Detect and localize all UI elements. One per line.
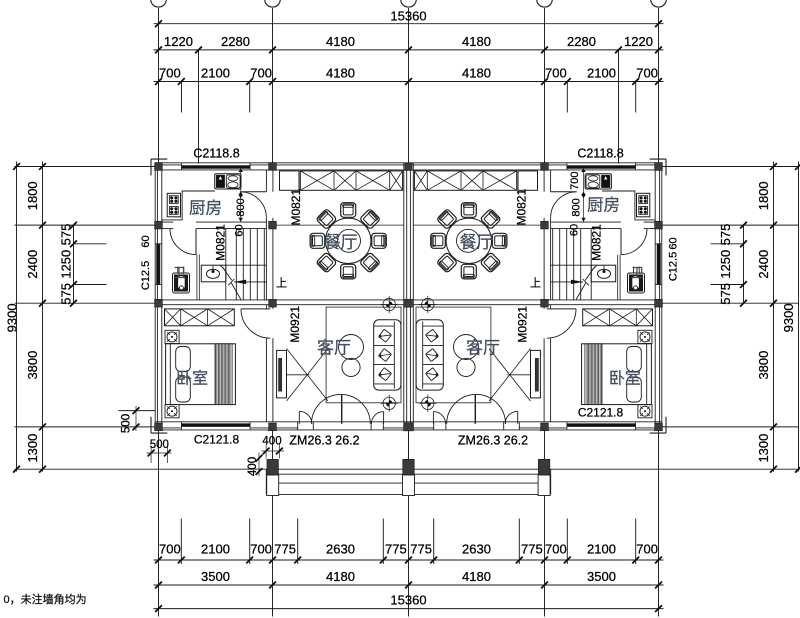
svg-text:4180: 4180 xyxy=(462,66,491,81)
svg-text:客厅: 客厅 xyxy=(317,339,351,358)
svg-text:3800: 3800 xyxy=(25,351,40,380)
svg-text:700: 700 xyxy=(159,542,181,557)
svg-text:卧室: 卧室 xyxy=(176,370,208,388)
svg-text:M0821: M0821 xyxy=(590,224,604,261)
svg-text:客厅: 客厅 xyxy=(466,339,500,358)
svg-text:厨房: 厨房 xyxy=(189,199,222,218)
svg-text:厨房: 厨房 xyxy=(587,196,620,215)
svg-text:15360: 15360 xyxy=(390,8,426,23)
svg-text:M0821: M0821 xyxy=(514,189,528,226)
svg-text:2100: 2100 xyxy=(587,542,616,557)
svg-text:ZM26.3 26.2: ZM26.3 26.2 xyxy=(289,434,359,448)
svg-text:1800: 1800 xyxy=(756,181,771,210)
svg-text:2100: 2100 xyxy=(201,66,230,81)
svg-text:4180: 4180 xyxy=(462,34,491,49)
svg-text:3500: 3500 xyxy=(587,569,616,584)
svg-text:775: 775 xyxy=(410,542,432,557)
svg-text:4180: 4180 xyxy=(326,569,355,584)
svg-text:2630: 2630 xyxy=(326,542,355,557)
svg-text:2280: 2280 xyxy=(221,34,250,49)
svg-text:1250: 1250 xyxy=(59,250,74,279)
svg-text:上: 上 xyxy=(530,277,541,290)
svg-text:700: 700 xyxy=(250,542,272,557)
svg-text:1220: 1220 xyxy=(624,34,653,49)
svg-text:775: 775 xyxy=(274,542,296,557)
svg-text:2630: 2630 xyxy=(462,542,491,557)
svg-text:15360: 15360 xyxy=(390,593,426,608)
svg-text:3500: 3500 xyxy=(201,569,230,584)
svg-text:575: 575 xyxy=(718,283,733,305)
svg-text:C12.5: C12.5 xyxy=(140,261,152,290)
svg-text:700: 700 xyxy=(250,66,272,81)
svg-text:700: 700 xyxy=(159,66,181,81)
svg-text:700: 700 xyxy=(545,66,567,81)
svg-text:上: 上 xyxy=(276,277,287,290)
svg-text:575: 575 xyxy=(718,224,733,246)
svg-text:800: 800 xyxy=(570,198,582,216)
svg-text:M0821: M0821 xyxy=(289,189,303,226)
svg-text:卫: 卫 xyxy=(631,266,644,280)
svg-text:2100: 2100 xyxy=(587,66,616,81)
svg-text:775: 775 xyxy=(521,542,543,557)
svg-text:2280: 2280 xyxy=(567,34,596,49)
svg-text:575: 575 xyxy=(59,283,74,305)
svg-text:700: 700 xyxy=(569,172,581,190)
svg-text:60: 60 xyxy=(667,237,679,249)
svg-text:C2121.8: C2121.8 xyxy=(578,406,624,420)
svg-text:C2121.8: C2121.8 xyxy=(194,433,240,447)
svg-text:60: 60 xyxy=(140,235,152,247)
svg-text:1220: 1220 xyxy=(164,34,193,49)
svg-text:ZM26.3 26.2: ZM26.3 26.2 xyxy=(458,434,528,448)
svg-text:2100: 2100 xyxy=(201,542,230,557)
svg-text:1250: 1250 xyxy=(718,250,733,279)
svg-text:1300: 1300 xyxy=(756,434,771,463)
svg-text:3800: 3800 xyxy=(756,351,771,380)
svg-text:C2118.8: C2118.8 xyxy=(193,147,239,161)
svg-text:9300: 9300 xyxy=(781,303,796,332)
svg-text:卫: 卫 xyxy=(173,266,186,280)
svg-text:700: 700 xyxy=(636,542,658,557)
svg-text:700: 700 xyxy=(545,542,567,557)
svg-text:M0921: M0921 xyxy=(515,306,529,343)
svg-text:4180: 4180 xyxy=(462,569,491,584)
svg-text:餐厅: 餐厅 xyxy=(324,233,358,252)
svg-text:700: 700 xyxy=(636,66,658,81)
svg-text:1800: 1800 xyxy=(25,181,40,210)
svg-text:500: 500 xyxy=(150,439,169,451)
svg-text:M0821: M0821 xyxy=(214,224,228,261)
svg-text:60: 60 xyxy=(234,224,246,236)
svg-text:800: 800 xyxy=(235,198,247,216)
svg-text:餐厅: 餐厅 xyxy=(460,233,494,252)
svg-text:575: 575 xyxy=(59,224,74,246)
svg-text:60: 60 xyxy=(569,224,581,236)
svg-text:M0921: M0921 xyxy=(288,306,302,343)
svg-text:C2118.8: C2118.8 xyxy=(577,147,623,161)
svg-text:4180: 4180 xyxy=(326,66,355,81)
svg-text:0，未注墙角均为: 0，未注墙角均为 xyxy=(4,592,87,606)
svg-text:2400: 2400 xyxy=(25,250,40,279)
svg-text:9300: 9300 xyxy=(5,303,20,332)
svg-text:C12.5: C12.5 xyxy=(667,252,679,281)
svg-text:2400: 2400 xyxy=(756,250,771,279)
svg-text:4180: 4180 xyxy=(326,34,355,49)
svg-text:1300: 1300 xyxy=(25,434,40,463)
svg-text:400: 400 xyxy=(247,457,259,476)
svg-text:400: 400 xyxy=(262,436,281,448)
svg-text:775: 775 xyxy=(385,542,407,557)
svg-text:卧室: 卧室 xyxy=(609,370,641,388)
svg-text:500: 500 xyxy=(121,414,133,433)
